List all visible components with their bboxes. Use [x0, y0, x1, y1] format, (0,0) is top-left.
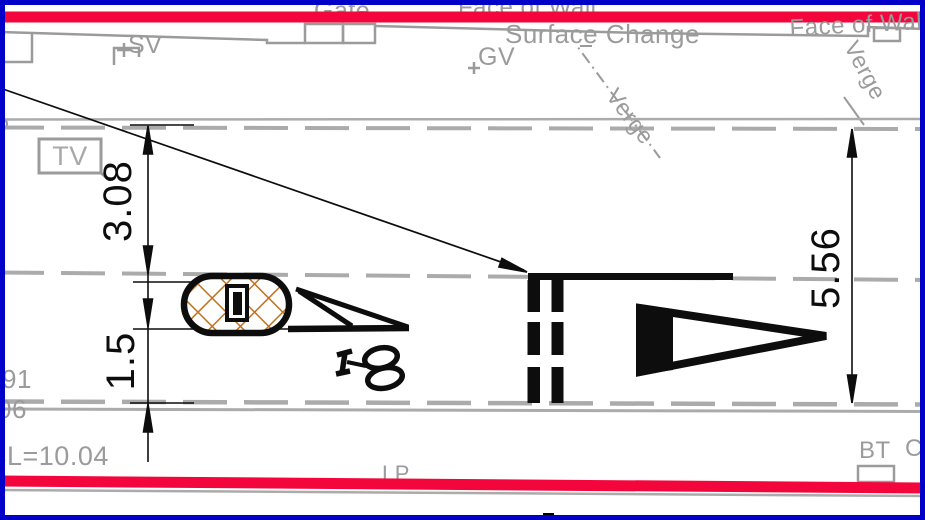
partial-number-91: 91	[2, 366, 32, 392]
bottom-edge-tick	[543, 513, 554, 517]
kerb-lines	[0, 0, 925, 520]
kerb-line-bottom	[0, 481, 925, 488]
surface-change-label: Surface Change	[505, 21, 700, 47]
dimension-text-left-upper: 3.08	[98, 151, 138, 251]
gv-label: GV	[478, 45, 515, 70]
sv-label: SV	[128, 33, 162, 58]
bt-label: BT	[859, 439, 891, 463]
tv-label: TV	[39, 143, 101, 170]
partial-number-06: 06	[0, 396, 27, 422]
level-note-label: CL=10.04	[0, 443, 109, 470]
c-partial-label: C	[905, 437, 923, 461]
cad-drawing-viewport: Gate Face of Wall LP Surface Change Face…	[0, 0, 925, 520]
dimension-text-left-lower: 1.5	[101, 321, 141, 401]
dimension-text-right: 5.56	[806, 213, 846, 323]
